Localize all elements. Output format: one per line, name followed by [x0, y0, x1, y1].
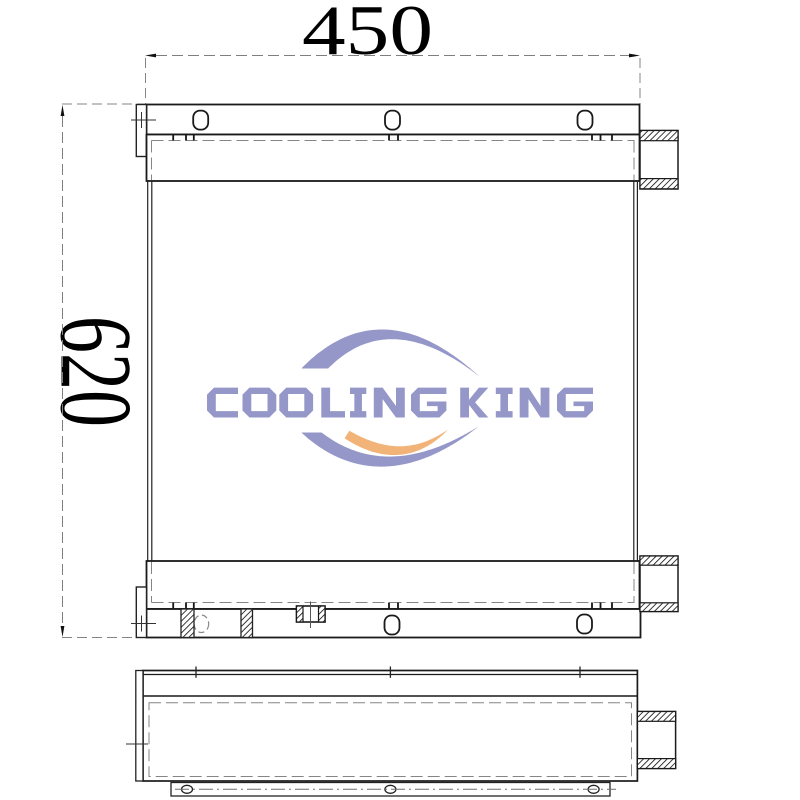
svg-text:620: 620 — [39, 316, 153, 427]
svg-text:450: 450 — [302, 0, 433, 70]
